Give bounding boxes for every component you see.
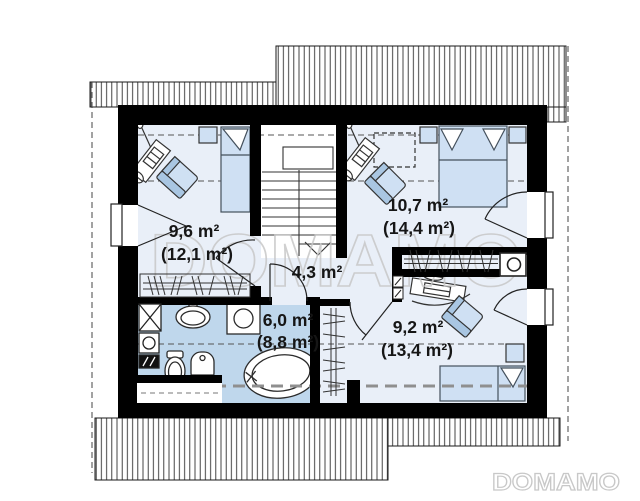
stair-wall-left <box>250 125 261 236</box>
nightstand <box>420 127 437 143</box>
bathroom-area-label: 6,0 m² <box>263 310 314 330</box>
bedroom-2-floor-area-label: (14,4 m²) <box>383 218 455 238</box>
nightstand <box>199 127 217 143</box>
floor-plan-svg: DOMAMO <box>0 0 640 501</box>
single-bed <box>440 366 525 401</box>
hall-area-label: 4,3 m² <box>292 262 343 282</box>
double-bed <box>439 126 507 207</box>
wall-right-middle <box>527 238 547 289</box>
bathroom-floor-area-label: (8,8 m²) <box>257 332 319 352</box>
chimney-duct <box>139 304 161 368</box>
bedroom-3-area-label: 9,2 m² <box>393 317 444 337</box>
nightstand <box>509 127 526 143</box>
corner-watermark: DOMAMO <box>492 469 620 496</box>
vent-duct <box>393 276 403 299</box>
bedroom-1-area-label: 9,6 m² <box>169 221 220 241</box>
wall-left-lower <box>118 246 138 418</box>
single-bed <box>221 127 250 212</box>
closet-wall-top <box>320 299 350 306</box>
bedroom3-wardrobe-wall-lower <box>402 269 500 277</box>
floor-plan-page: DOMAMO <box>0 0 640 501</box>
bedroom-1-floor-area-label: (12,1 m²) <box>161 244 233 264</box>
wall-right-upper <box>527 105 547 192</box>
bedroom-3-floor-area-label: (13,4 m²) <box>381 340 453 360</box>
wall-left-upper <box>118 105 138 205</box>
knee-wall-niche <box>137 383 222 403</box>
stair-wall-right <box>336 125 347 258</box>
nightstand <box>506 344 524 362</box>
bedroom-2-area-label: 10,7 m² <box>388 195 448 215</box>
wall-bottom <box>118 403 547 418</box>
niche-wall <box>128 375 222 383</box>
water-heater <box>500 253 526 276</box>
closet-wall-right-stub <box>347 380 360 403</box>
wall-top <box>118 105 547 125</box>
washing-machine <box>227 303 260 334</box>
